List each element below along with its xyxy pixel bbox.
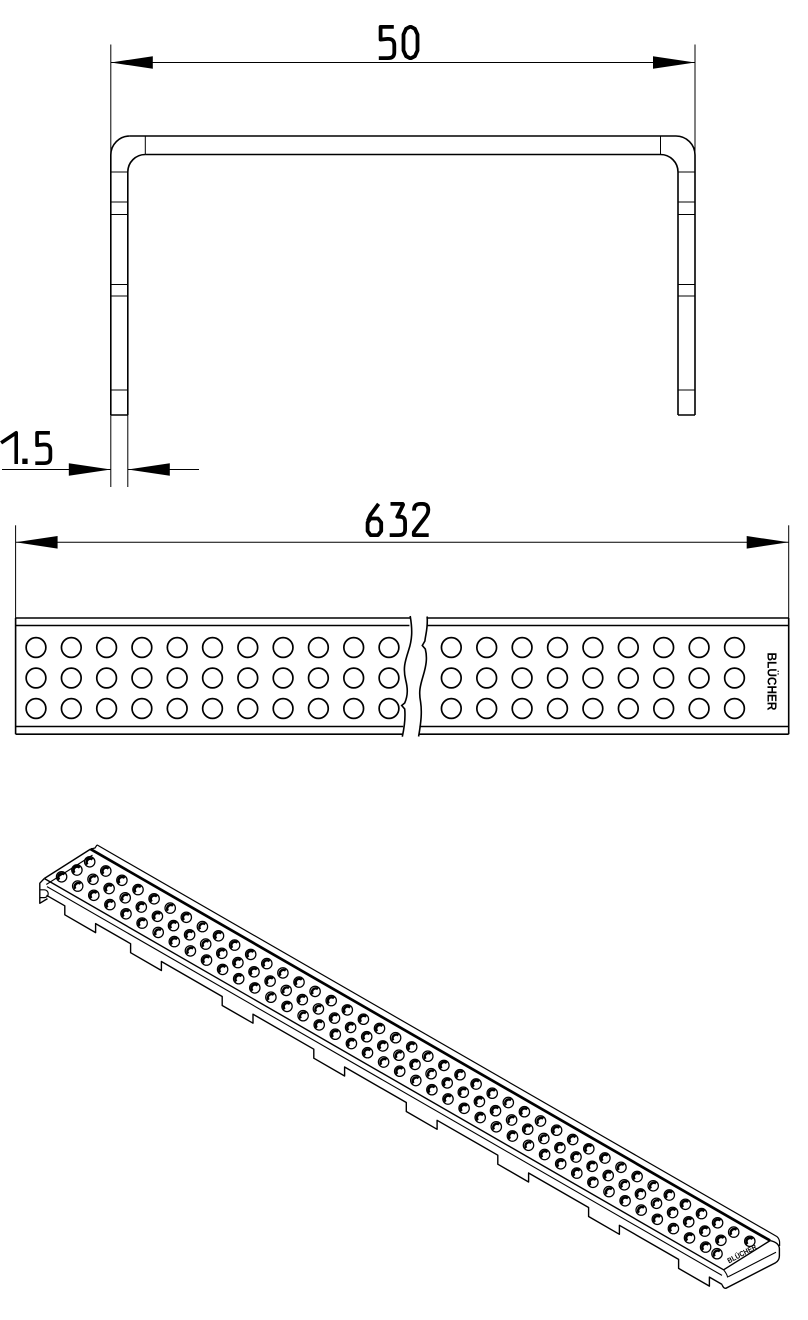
svg-text:BLÜCHER: BLÜCHER — [764, 653, 779, 712]
